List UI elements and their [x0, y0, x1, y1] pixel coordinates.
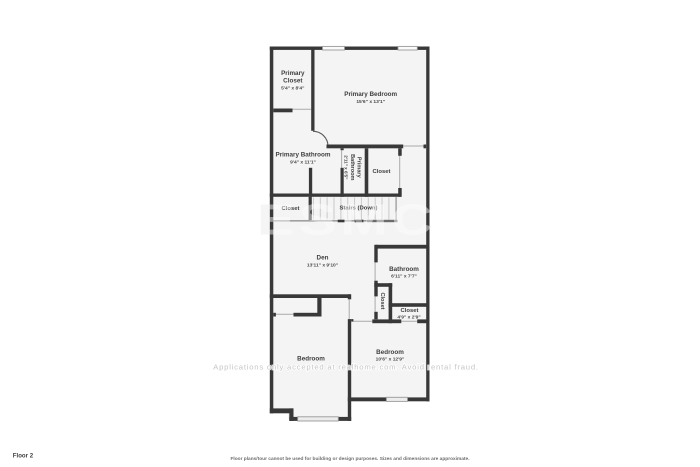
svg-text:Closet: Closet	[379, 292, 385, 309]
svg-text:9'4" x 11'1": 9'4" x 11'1"	[290, 159, 316, 165]
svg-text:4'9" x 2'9": 4'9" x 2'9"	[397, 314, 420, 320]
svg-text:Bedroom: Bedroom	[376, 349, 404, 356]
svg-text:Closet: Closet	[372, 169, 390, 175]
svg-text:Closet: Closet	[283, 78, 303, 85]
svg-text:Primary Bathroom: Primary Bathroom	[276, 152, 331, 159]
svg-text:Floor 2: Floor 2	[13, 452, 34, 459]
svg-text:Bathroom: Bathroom	[389, 266, 419, 273]
svg-text:Applications only accepted at: Applications only accepted at realhome.c…	[213, 363, 479, 372]
svg-text:Den: Den	[317, 255, 329, 262]
svg-text:Bathroom: Bathroom	[349, 154, 355, 180]
svg-text:6'11" x 7'7": 6'11" x 7'7"	[391, 273, 417, 279]
svg-text:Bedroom: Bedroom	[297, 356, 325, 363]
svg-text:Floor plans/tour cannot be use: Floor plans/tour cannot be used for buil…	[230, 456, 469, 462]
svg-text:5'4" x 8'4": 5'4" x 8'4"	[281, 85, 304, 91]
svg-text:2'11" x 6'5": 2'11" x 6'5"	[344, 155, 349, 179]
svg-text:10'6" x 12'9": 10'6" x 12'9"	[376, 356, 405, 362]
svg-text:Primary: Primary	[281, 70, 305, 77]
svg-text:15'6" x 13'1": 15'6" x 13'1"	[356, 99, 385, 105]
svg-text:Primary Bedroom: Primary Bedroom	[344, 91, 397, 98]
svg-text:Primary: Primary	[356, 157, 362, 179]
svg-text:Closet: Closet	[400, 308, 418, 314]
svg-text:13'11" x 9'10": 13'11" x 9'10"	[307, 262, 338, 268]
